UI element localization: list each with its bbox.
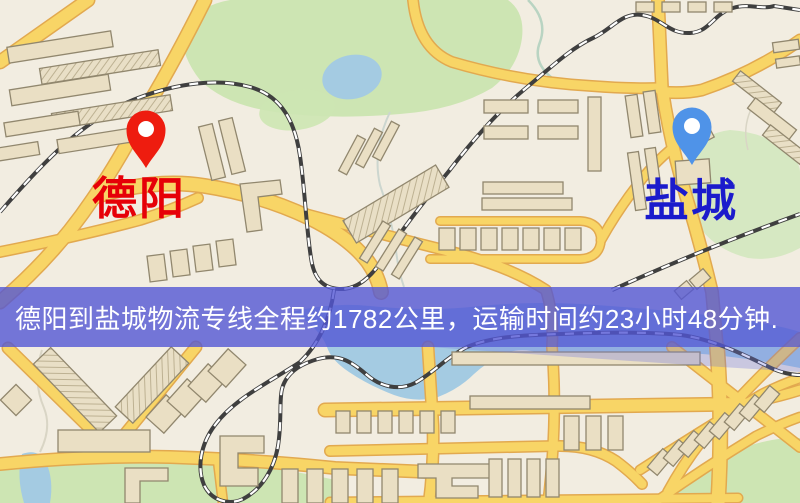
origin-city-label: 德阳 bbox=[92, 176, 186, 221]
route-info-text: 德阳到盐城物流专线全程约1782公里，运输时间约23小时48分钟. bbox=[15, 299, 778, 336]
route-info-banner: 德阳到盐城物流专线全程约1782公里，运输时间约23小时48分钟. bbox=[0, 287, 800, 347]
destination-city-label: 盐城 bbox=[644, 178, 738, 223]
map-canvas[interactable] bbox=[0, 0, 800, 503]
map-view[interactable]: 德阳 盐城 德阳到盐城物流专线全程约1782公里，运输时间约23小时48分钟. bbox=[0, 0, 800, 503]
